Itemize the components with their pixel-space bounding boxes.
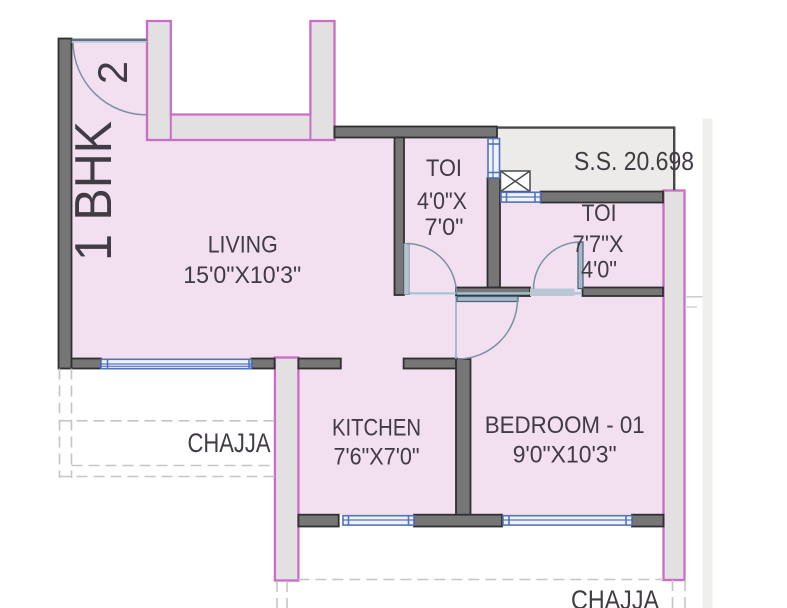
svg-text:7'7"X: 7'7"X xyxy=(573,231,624,258)
svg-text:15'0"X10'3": 15'0"X10'3" xyxy=(183,262,301,289)
svg-text:BEDROOM - 01: BEDROOM - 01 xyxy=(485,412,645,439)
svg-text:TOI: TOI xyxy=(582,200,617,227)
svg-text:KITCHEN: KITCHEN xyxy=(332,415,421,442)
svg-text:7'0": 7'0" xyxy=(425,214,464,241)
svg-text:TOI: TOI xyxy=(426,155,462,182)
svg-text:1 BHK: 1 BHK xyxy=(65,121,123,261)
svg-text:4'0": 4'0" xyxy=(581,257,617,284)
svg-text:S.S. 20.698: S.S. 20.698 xyxy=(574,146,694,176)
svg-text:CHAJJA: CHAJJA xyxy=(188,428,271,458)
svg-text:LIVING: LIVING xyxy=(208,232,278,259)
svg-text:9'0"X10'3": 9'0"X10'3" xyxy=(513,442,617,469)
svg-text:CHAJJA: CHAJJA xyxy=(571,585,659,608)
svg-text:7'6"X7'0": 7'6"X7'0" xyxy=(334,444,420,471)
svg-text:4'0"X: 4'0"X xyxy=(417,188,467,215)
svg-text:2: 2 xyxy=(89,61,136,84)
